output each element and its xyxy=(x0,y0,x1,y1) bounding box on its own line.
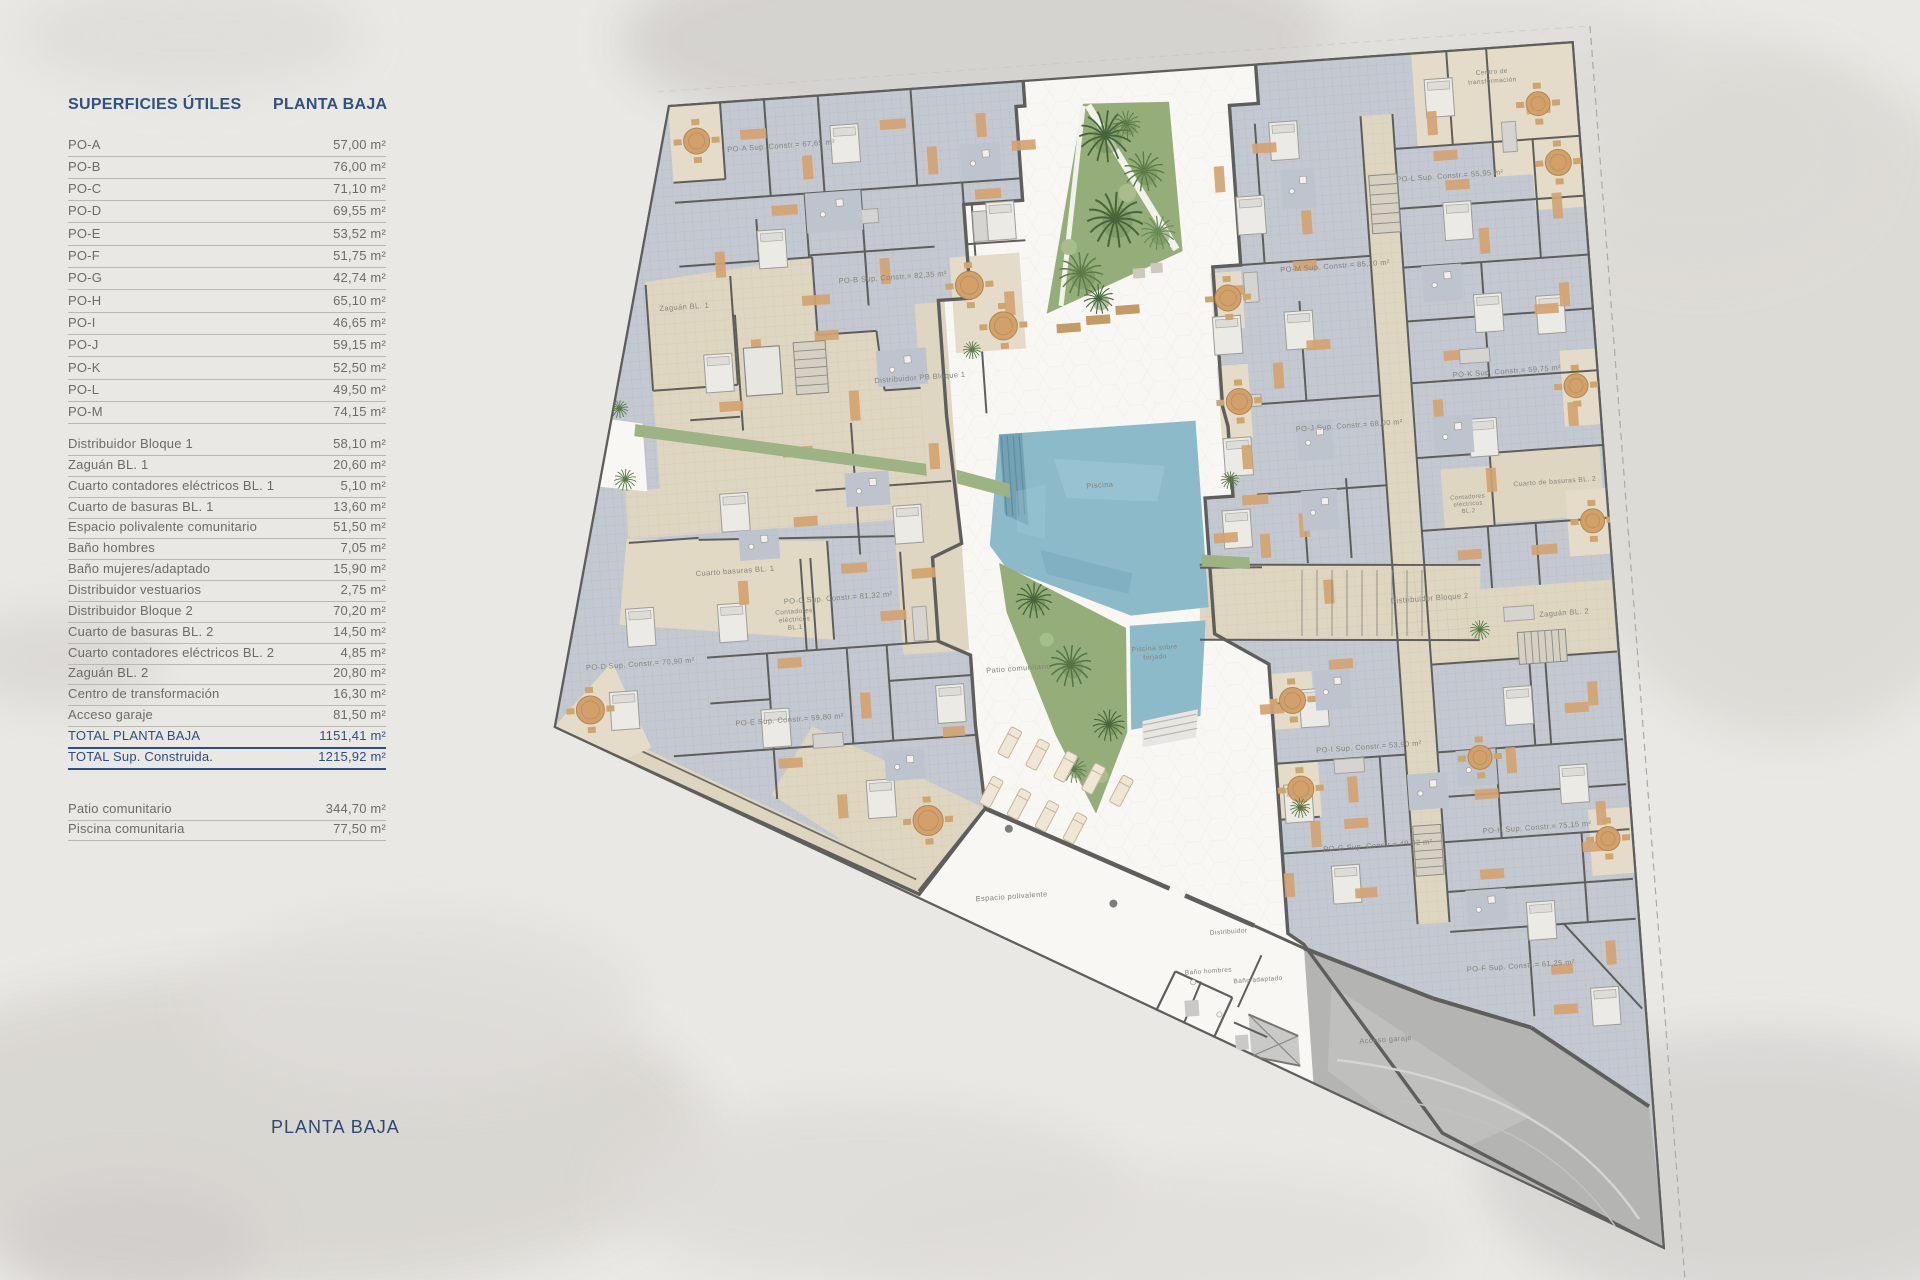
svg-text:BL.1: BL.1 xyxy=(787,624,802,632)
svg-text:Piscina: Piscina xyxy=(1086,480,1114,491)
svg-text:BL.2: BL.2 xyxy=(1461,508,1476,515)
